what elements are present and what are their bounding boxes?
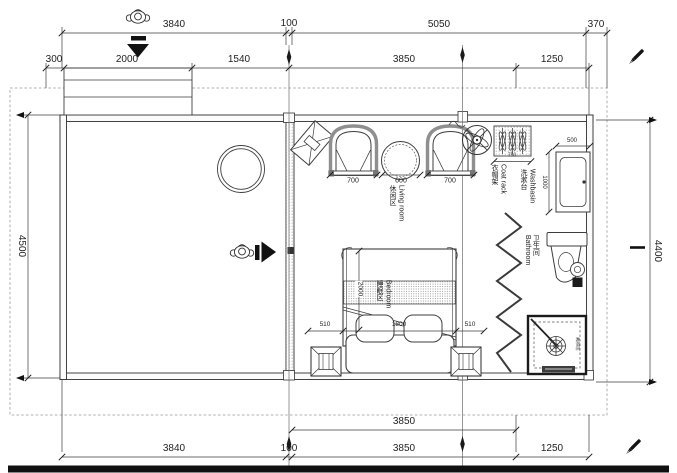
label-bathroom: Bathroom 卫生间	[523, 235, 540, 265]
entry-stairs	[64, 68, 192, 115]
nightstand-right	[451, 347, 481, 376]
label-bathroom-en: Bathroom	[523, 235, 531, 265]
dim-top2-3850: 3850	[393, 55, 415, 65]
label-living-en: Living room	[396, 185, 404, 221]
dim-bed-2000: 2000	[356, 281, 363, 297]
dim-top-3840: 3840	[163, 20, 185, 30]
pen-icon-top	[628, 49, 644, 65]
folding-partition	[497, 213, 521, 372]
floor-plan-linework	[0, 0, 677, 473]
tilted-cabinet	[291, 121, 334, 166]
dim-basin-500: 500	[567, 138, 577, 144]
coat-rack	[494, 126, 531, 156]
dim-bottom2-1250: 1250	[541, 444, 563, 454]
dim-chair-right-700: 700	[444, 178, 456, 185]
dim-top2-300: 300	[46, 55, 63, 65]
center-partition-wall	[286, 115, 294, 380]
dim-bottom2-3850: 3850	[393, 444, 415, 454]
label-bedroom: 睡眠区 Bedroom	[375, 280, 392, 308]
label-coat-rack: 衣帽架 Coat rack	[490, 164, 507, 194]
dim-top-100: 100	[281, 19, 298, 29]
label-washbasin-zh: 洗漱台	[519, 169, 527, 203]
dim-top2-2000: 2000	[116, 55, 138, 65]
label-bedroom-en: Bedroom	[383, 280, 391, 308]
dim-basin-1000: 1000	[541, 175, 547, 188]
label-coat-rack-en: Coat rack	[498, 164, 506, 194]
armchair-left	[329, 126, 378, 177]
pillow-left	[356, 315, 394, 342]
round-side-table	[382, 142, 420, 180]
pen-icon-bottom	[625, 439, 641, 455]
dim-top-370: 370	[588, 20, 605, 30]
door-pivot-mark	[288, 247, 294, 254]
dim-rack-750: 750	[508, 154, 516, 159]
label-bathroom-zh: 卫生间	[531, 235, 539, 265]
label-shower-zh: 淋浴间	[575, 337, 580, 351]
dim-left-4500: 4500	[16, 235, 26, 257]
label-living-room: 休闲区 Living room	[388, 185, 405, 221]
label-shower: 淋浴间	[575, 337, 580, 351]
dim-bed-1800: 1800	[392, 322, 406, 329]
dim-bottom2-100: 100	[281, 444, 298, 454]
nightstand-left	[311, 347, 341, 376]
dim-top2-1250: 1250	[541, 55, 563, 65]
dim-bottom2-3840: 3840	[163, 444, 185, 454]
label-coat-rack-zh: 衣帽架	[490, 164, 498, 194]
deck-person-icon	[230, 245, 253, 258]
label-washbasin-en: Washbasin	[527, 169, 535, 203]
toilet-paper-roll	[571, 263, 585, 288]
label-bedroom-zh: 睡眠区	[375, 280, 383, 308]
label-living-zh: 休闲区	[388, 185, 396, 221]
faucet-icon	[582, 180, 585, 183]
floor-plan-sheet: 3840 100 5050 370 300 2000 1540 3850 125…	[0, 0, 677, 473]
dim-top2-1540: 1540	[228, 55, 250, 65]
dim-top-5050: 5050	[428, 20, 450, 30]
entry-arrow-right-icon	[255, 242, 276, 263]
dim-right-4400: 4400	[652, 240, 662, 262]
label-washbasin: 洗漱台 Washbasin	[519, 169, 536, 203]
dim-bed-510-left: 510	[320, 322, 331, 329]
deck-round-table	[218, 146, 265, 193]
dim-table-600: 600	[395, 178, 407, 185]
sheet-bottom-bar	[8, 466, 669, 473]
washbasin-counter	[556, 152, 590, 212]
entry-person-icon	[126, 10, 149, 23]
dim-chair-left-700: 700	[347, 178, 359, 185]
dim-bed-510-right: 510	[465, 322, 476, 329]
floor-drain-icon	[547, 337, 566, 356]
dim-bottom1-3850: 3850	[393, 417, 415, 427]
pillow-right	[404, 315, 442, 342]
